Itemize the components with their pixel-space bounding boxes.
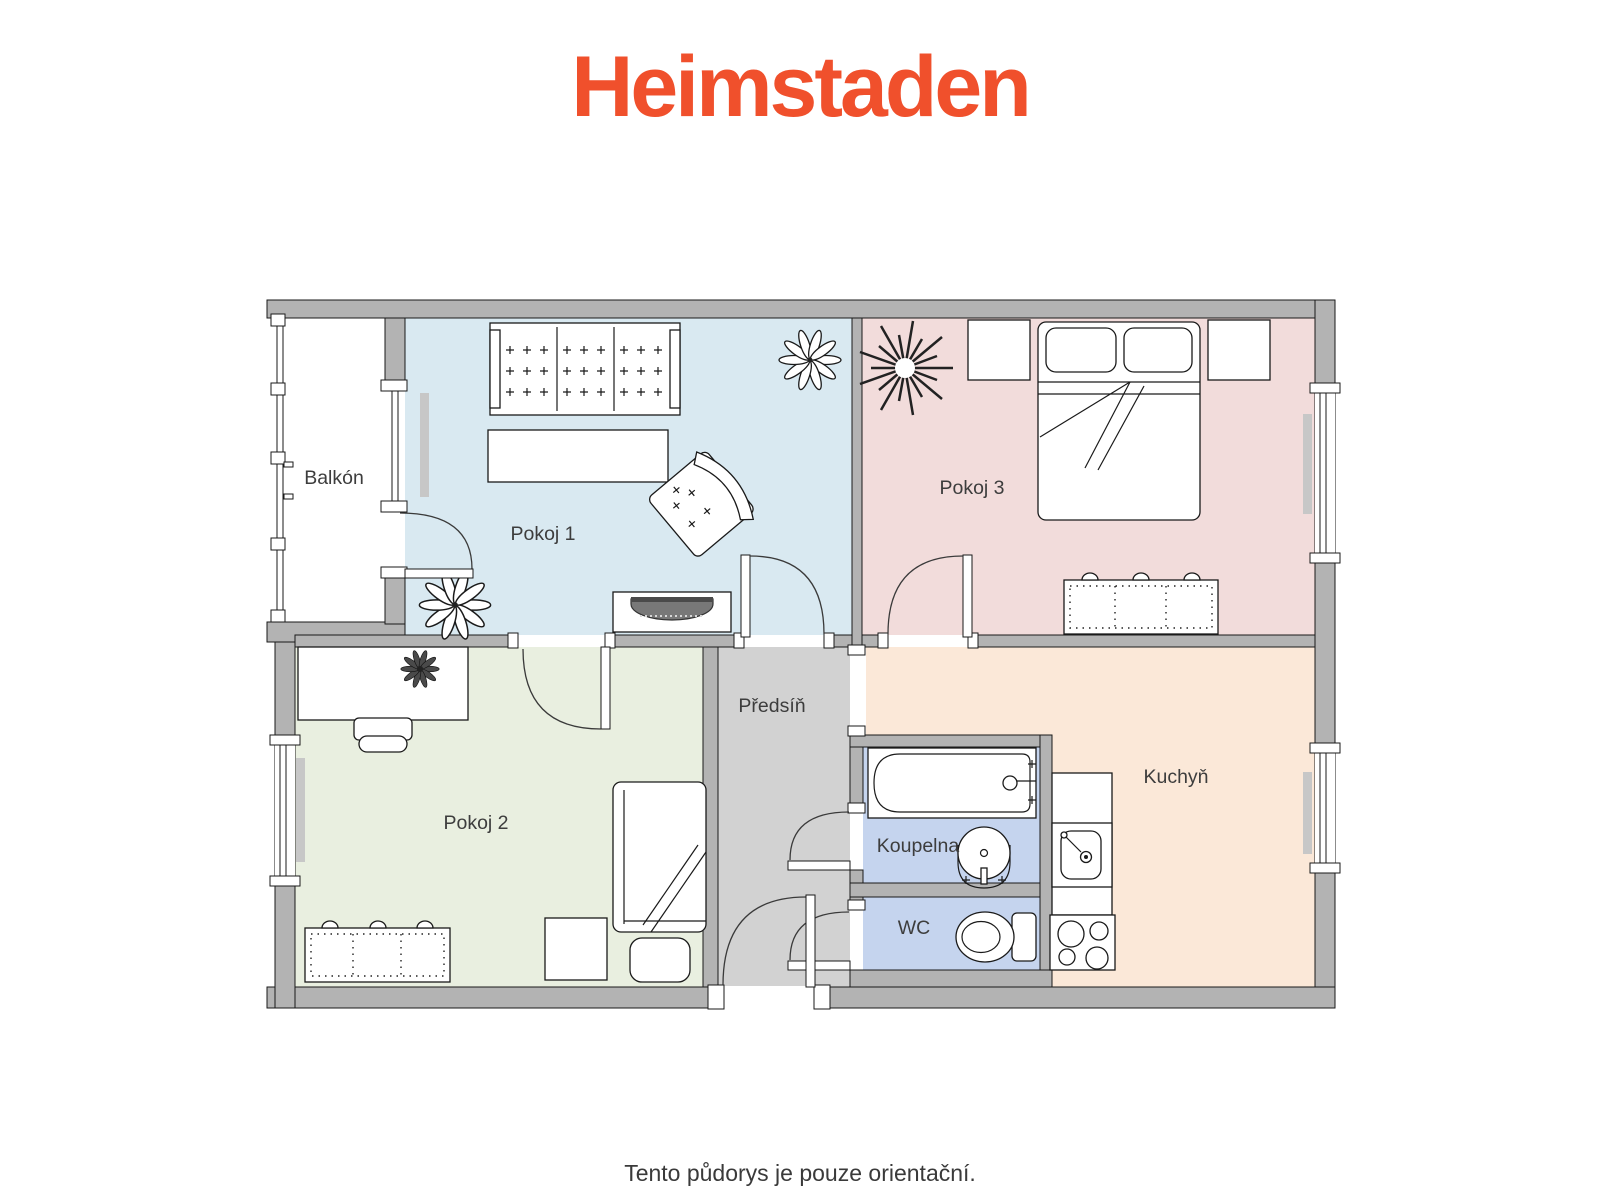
kuchyn-window-sill-bottom [1310, 863, 1340, 873]
room-label-wc: WC [898, 917, 931, 939]
wc-door-jamb-top [848, 900, 865, 910]
pokoj2-window-sill-bottom [270, 876, 300, 886]
koupelna-door-jamb-top [848, 803, 865, 813]
washbasin-tap [981, 868, 987, 884]
burner [1058, 921, 1084, 947]
kitchen-sink [1052, 823, 1112, 887]
door-leaf [806, 895, 815, 987]
room-label-balcony: Balkón [304, 467, 364, 489]
washbasin [958, 827, 1010, 888]
door-leaf [601, 647, 610, 729]
room-label-pokoj1: Pokoj 1 [510, 523, 575, 545]
door-leaf [405, 569, 473, 578]
balcony-door-post-bottom [381, 567, 407, 578]
pokoj2-window-sill-top [270, 735, 300, 745]
floor-plan: Balkón Pokoj 1 Pokoj 3 Pokoj 2 Předsíň K… [250, 280, 1350, 1025]
railing-post [271, 314, 285, 326]
wall-mid-4 [968, 635, 1315, 647]
railing-post [271, 452, 285, 464]
railing-bracket [284, 494, 293, 499]
radiator [420, 393, 429, 497]
toilet-bowl [956, 912, 1014, 962]
wall-wc-bottom [850, 970, 1052, 987]
bathtub-drain [1003, 776, 1017, 790]
pillow [1124, 328, 1192, 372]
pokoj3-window-sill-top [1310, 383, 1340, 393]
tv-stand [613, 592, 731, 632]
railing-bracket [284, 462, 293, 467]
balcony-window-post-top [381, 380, 407, 391]
kuchyn-doorway-jamb-top [848, 645, 865, 655]
radiator [296, 758, 305, 862]
wall-mid-2 [605, 635, 744, 647]
burner [1086, 947, 1108, 969]
stove [1050, 915, 1115, 970]
door-leaf [788, 961, 850, 970]
room-label-koupelna: Koupelna [877, 835, 960, 857]
railing-post [271, 383, 285, 395]
balcony-window-glass [392, 391, 398, 501]
room-label-pokoj3: Pokoj 3 [939, 477, 1004, 499]
railing-post [271, 610, 285, 622]
disclaimer-text: Tento půdorys je pouze orientační. [0, 1160, 1600, 1187]
wall-top [267, 300, 1335, 318]
pokoj2-door-jamb-left [508, 633, 518, 648]
dresser [1064, 573, 1218, 634]
brand-logo: Heimstaden [0, 38, 1600, 137]
kuchyn-fixtures [1050, 773, 1115, 970]
wall-bath-top [850, 735, 1052, 747]
burner [1059, 949, 1075, 965]
toilet [956, 912, 1036, 962]
pokoj3-window-glass [1320, 393, 1326, 553]
wall-bath-left-a [850, 747, 863, 805]
toilet-tank [1012, 913, 1036, 961]
entrance-jamb-right [814, 985, 830, 1009]
rug [630, 938, 690, 982]
door-leaf [788, 861, 850, 870]
desk-chair [354, 718, 412, 752]
wall-mid-1 [295, 635, 518, 647]
room-label-predsin: Předsíň [738, 695, 805, 717]
tv-screen [631, 597, 713, 602]
door-leaf [741, 555, 750, 637]
room-label-kuchyn: Kuchyň [1143, 766, 1208, 788]
burner [1090, 922, 1108, 940]
kuchyn-doorway-jamb-bottom [848, 726, 865, 736]
entrance-jamb-left [708, 985, 724, 1009]
railing-line [277, 318, 283, 622]
single-bed [613, 782, 706, 932]
nightstand [1208, 320, 1270, 380]
coffee-table [488, 430, 668, 482]
pokoj1-door-jamb-right [824, 633, 834, 648]
wall-bath-wc-divider [850, 883, 1052, 897]
pillow [1046, 328, 1116, 372]
desk [298, 647, 468, 720]
bathtub [868, 748, 1036, 818]
pokoj3-window-sill-bottom [1310, 553, 1340, 563]
balcony-door-post-top [381, 501, 407, 512]
room-label-pokoj2: Pokoj 2 [443, 812, 508, 834]
door-leaf [963, 555, 972, 637]
pokoj3-door-jamb-left [878, 633, 888, 648]
railing-post [271, 538, 285, 550]
kuchyn-window-glass [1320, 753, 1326, 863]
wall-pokoj1-pokoj3 [852, 318, 862, 647]
radiator [1303, 772, 1312, 854]
dresser [305, 921, 450, 982]
side-table [545, 918, 607, 980]
entrance-opening [723, 986, 815, 1009]
pokoj2-window-glass [280, 745, 286, 876]
radiator [1303, 414, 1312, 514]
wall-balcony-divider-bottom [385, 578, 405, 624]
double-bed [1038, 322, 1200, 520]
sofa [490, 323, 680, 415]
pokoj2-door-jamb-right [605, 633, 615, 648]
wall-balcony-divider-top [385, 318, 405, 380]
nightstand [968, 320, 1030, 380]
kuchyn-window-sill-top [1310, 743, 1340, 753]
